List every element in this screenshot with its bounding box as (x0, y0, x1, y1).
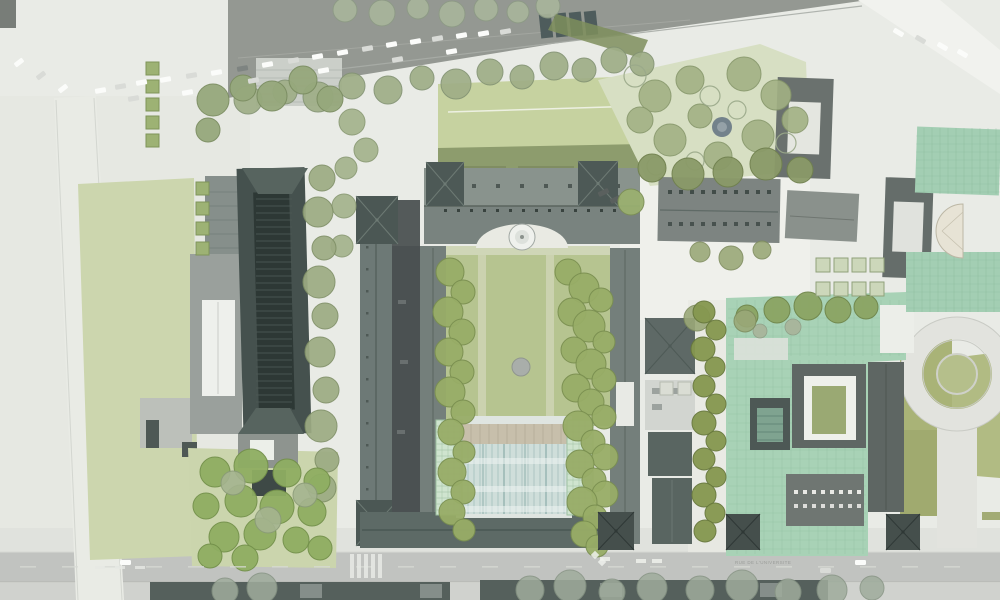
palace-north-wing-dormers-9 (561, 209, 564, 212)
bottom-road-center-dashes-7 (314, 566, 330, 568)
bottom-road-center-dashes-5 (230, 566, 246, 568)
road-markings-1 (636, 559, 646, 563)
palace-pavilion-northwest-3 (443, 182, 446, 185)
park-building-chimneys-row1-2 (690, 190, 694, 194)
allee-trees-12 (694, 520, 716, 542)
courtyard-path-left (478, 250, 486, 422)
east-block-a-3 (668, 344, 671, 347)
grove-trees-sage-2 (293, 483, 317, 507)
mint-south-windows-row2-3 (821, 504, 825, 508)
bottom-road-center-dashes-11 (482, 566, 498, 568)
northwest-tree-cluster-0 (197, 84, 229, 116)
boulevard-trees-north-row-2 (407, 0, 429, 19)
hedge-column-east-3 (196, 242, 209, 255)
west-road-dashes-1 (115, 566, 125, 569)
park-trees-5 (654, 124, 686, 156)
left-building-inner (253, 192, 295, 411)
terrace-fountain-jet (520, 235, 524, 239)
bottom-street-trees-10 (860, 576, 884, 600)
palace-west-outer-dormers-6 (366, 356, 369, 359)
mint-south-windows-row2-2 (812, 504, 816, 508)
palace-west-outer-dormers-11 (366, 466, 369, 469)
crosswalk-2 (364, 554, 368, 578)
left-building-tree-row-4 (312, 303, 338, 329)
palace-east-wing-court (616, 382, 634, 426)
parterre-garden-1 (834, 258, 848, 272)
grove-trees-12 (198, 544, 222, 568)
parterre-garden-5 (834, 282, 848, 296)
bottom-building-gaps-0 (300, 584, 322, 598)
park-building-chimneys-row1-9 (767, 190, 771, 194)
left-building-tree-row-6 (313, 377, 339, 403)
mint-south-windows-row2-5 (839, 504, 843, 508)
glass-hall-top-band (462, 424, 567, 444)
courtyard-trees-west-8 (438, 419, 464, 445)
palace-west-outer-dormers-10 (366, 444, 369, 447)
forecourt-tree (618, 189, 644, 215)
northeast-block-court (892, 201, 924, 252)
park-trees-9 (782, 107, 808, 133)
west-road-dashes-2 (135, 566, 145, 569)
palace-north-wing-dormers-1 (457, 209, 460, 212)
hedge-column-east-1 (196, 202, 209, 215)
northwest-tree-cluster-5 (196, 118, 220, 142)
crosswalk-3 (371, 554, 375, 578)
parterre-garden-3 (870, 258, 884, 272)
mint-south-windows-row1-2 (812, 490, 816, 494)
east-block-c (648, 432, 692, 476)
courtyard-trees-east-11 (592, 405, 616, 429)
bottom-road-center-dashes-15 (650, 566, 666, 568)
park-building-chimneys-row2-9 (767, 222, 771, 226)
mint-south-windows-row1-6 (848, 490, 852, 494)
park-building-chimneys-row2-5 (723, 222, 727, 226)
bottom-road-center-dashes-4 (188, 566, 204, 568)
boulevard-trees-north-row-4 (474, 0, 498, 21)
left-building-tree-row-5 (305, 337, 335, 367)
park-building-chimneys-row1-1 (679, 190, 683, 194)
mint-south-windows-row1-7 (857, 490, 861, 494)
park-pond-inner (717, 122, 727, 132)
bottom-road-center-dashes-21 (902, 566, 918, 568)
palace-north-wing-dormers-13 (613, 209, 616, 212)
grove-trees-11 (308, 536, 332, 560)
park-building-chimneys-row2-8 (756, 222, 760, 226)
courtyard-trees-east-14 (592, 444, 618, 470)
circular-drive-stem (937, 416, 977, 548)
palace-north-wing-chimneys-5 (568, 184, 572, 188)
palace-west-outer-dormers-3 (366, 290, 369, 293)
park-dark-tree-band-4 (787, 157, 813, 183)
bottom-street-trees-3 (554, 570, 586, 600)
park-dark-tree-band-1 (672, 158, 704, 190)
palace-north-wing-dormers-6 (522, 209, 525, 212)
grove-trees-sage-0 (221, 471, 245, 495)
garden-trees-0 (690, 242, 710, 262)
park-building-chimneys-row1-8 (756, 190, 760, 194)
courtyard-trees-east-8 (592, 368, 616, 392)
mint-north-trees-1 (764, 297, 790, 323)
allee-trees-7 (706, 431, 726, 451)
palace-west-outer-dormers-2 (366, 268, 369, 271)
palace-north-wing-dormers-12 (600, 209, 603, 212)
allee-trees-0 (693, 301, 715, 323)
park-building-chimneys-row1-6 (734, 190, 738, 194)
site-plan-canvas: RUE DE L'UNIVERSITE (0, 0, 1000, 600)
park-building-chimneys-row2-0 (668, 222, 672, 226)
boulevard-trees-north-row-3 (439, 1, 465, 27)
glass-hall-light-bands-1 (462, 486, 567, 492)
allee-trees-3 (705, 357, 725, 377)
bottom-road-center-dashes-22 (944, 566, 960, 568)
palace-pavilion-west-north-3 (375, 218, 378, 221)
boulevard-trees-main-row-10 (572, 58, 596, 82)
palace-pavilion-northeast-3 (596, 182, 599, 185)
park-dark-tree-band-0 (638, 154, 666, 182)
mint-south-windows-row1-0 (794, 490, 798, 494)
park-trees-1 (676, 66, 704, 94)
parterre-garden-6 (852, 282, 866, 296)
glass-hall-light-bands-0 (462, 458, 567, 464)
garden-hedge-squares-1 (678, 382, 691, 395)
grove-trees-10 (283, 527, 309, 553)
courtyard-center-fountain (512, 358, 530, 376)
mint-south-block (786, 474, 864, 526)
bottom-road-center-dashes-10 (440, 566, 456, 568)
bottom-road-center-dashes-3 (146, 566, 162, 568)
west-court-marks-1 (400, 360, 408, 364)
palace-north-wing-dormers-11 (587, 209, 590, 212)
garden-trees-2 (753, 241, 771, 259)
bottom-street-trees-1 (247, 573, 277, 600)
platform-dark-block (146, 420, 159, 448)
top-road-corner-patch (0, 0, 16, 28)
allee-trees-5 (706, 394, 726, 414)
garden-hedge-squares-0 (660, 382, 673, 395)
northwest-tree-cluster-2 (257, 81, 287, 111)
palace-west-outer-dormers-4 (366, 312, 369, 315)
mid-west-trees-1 (354, 138, 378, 162)
mint-south-windows-row2-0 (794, 504, 798, 508)
bottom-road-cars-2 (855, 560, 866, 565)
street-pavilion-west-3 (614, 529, 617, 532)
palace-north-wing-dormers-4 (496, 209, 499, 212)
courtyard-path-right (546, 250, 554, 422)
boulevard-trees-main-row-5 (410, 66, 434, 90)
boulevard-trees-north-row-5 (507, 1, 529, 23)
hedge-column-west-2 (146, 98, 159, 111)
grove-trees-sage-1 (255, 507, 281, 533)
palace-north-wing-chimneys-4 (544, 184, 548, 188)
park-building-chimneys-row2-6 (734, 222, 738, 226)
palace-north-wing-dormers-8 (548, 209, 551, 212)
northwest-tree-cluster-3 (289, 66, 317, 94)
palace-north-wing-dormers-0 (444, 209, 447, 212)
palace-north-wing-chimneys-1 (472, 184, 476, 188)
park-building-chimneys-row1-7 (745, 190, 749, 194)
palace-north-wing-dormers-7 (535, 209, 538, 212)
left-building-tree-row-0 (309, 165, 335, 191)
park-dark-tree-band-3 (750, 148, 782, 180)
mint-south-windows-row2-1 (803, 504, 807, 508)
northwest-tree-cluster-4 (317, 86, 343, 112)
park-dark-tree-band-2 (713, 157, 743, 187)
hedge-column-west-0 (146, 62, 159, 75)
palace-west-outer-dormers-5 (366, 334, 369, 337)
park-building-chimneys-row2-1 (679, 222, 683, 226)
boulevard-trees-main-row-12 (630, 52, 654, 76)
left-building-tree-row-2 (312, 236, 336, 260)
hedge-column-west-1 (146, 80, 159, 93)
west-road-dashes-0 (95, 566, 105, 569)
east-block-b-marks-2 (652, 404, 662, 410)
bottom-street-trees-9 (817, 575, 847, 600)
hedge-column-west-4 (146, 134, 159, 147)
bottom-road-center-dashes-12 (524, 566, 540, 568)
mid-west-trees-0 (339, 109, 365, 135)
boulevard-trees-main-row-8 (510, 65, 534, 89)
boulevard-trees-main-row-11 (601, 47, 627, 73)
bottom-road-center-dashes-1 (62, 566, 78, 568)
palace-west-outer-dormers-7 (366, 378, 369, 381)
palace-west-court-strip (392, 246, 420, 544)
bottom-road-cars-1 (820, 568, 831, 573)
mint-northwest-court (734, 338, 788, 360)
bottom-road-center-dashes-13 (566, 566, 582, 568)
park-building-chimneys-row2-7 (745, 222, 749, 226)
mint-south-windows-row2-6 (848, 504, 852, 508)
mint-olive-court (812, 386, 846, 434)
bottom-road-center-dashes-19 (818, 566, 834, 568)
teal-court (757, 408, 783, 442)
park-trees-4 (688, 104, 712, 128)
west-court-marks-2 (397, 430, 405, 434)
bottom-road-cars-0 (120, 560, 131, 565)
palace-west-outer-dormers-8 (366, 400, 369, 403)
mint-northeast-1 (915, 127, 1000, 196)
bottom-road-center-dashes-16 (692, 566, 708, 568)
grove-trees-4 (193, 493, 219, 519)
park-trees-2 (727, 57, 761, 91)
mint-south-windows-row1-4 (830, 490, 834, 494)
palace-north-wing-dormers-5 (509, 209, 512, 212)
palace-west-outer-dormers-9 (366, 422, 369, 425)
bottom-road-center-dashes-0 (20, 566, 36, 568)
bottom-road-center-dashes-14 (608, 566, 624, 568)
street-pavilion-center-3 (741, 530, 744, 533)
park-building-chimneys-row1-0 (668, 190, 672, 194)
park-building-chimneys-row1-4 (712, 190, 716, 194)
mint-south-windows-row2-4 (830, 504, 834, 508)
palace-west-outer-dormers-1 (366, 246, 369, 249)
bottom-street-trees-5 (637, 573, 667, 600)
circular-drive-island (937, 354, 977, 394)
crosswalk-4 (378, 554, 382, 578)
mint-south-windows-row1-5 (839, 490, 843, 494)
glass-hall-light-bands-2 (462, 506, 567, 512)
mid-west-trees-3 (332, 194, 356, 218)
parterre-garden-7 (870, 282, 884, 296)
crosswalk-0 (350, 554, 354, 578)
bottom-street-trees-4 (599, 579, 625, 600)
parterre-garden-4 (816, 282, 830, 296)
left-building-tree-row-1 (303, 197, 333, 227)
garden-trees-1 (719, 246, 743, 270)
bottom-street-trees-0 (212, 578, 238, 600)
palace-north-wing-chimneys-3 (520, 184, 524, 188)
west-court-marks-0 (398, 300, 406, 304)
park-trees-7 (742, 120, 774, 152)
left-lawn (78, 178, 198, 560)
boulevard-trees-north-row-1 (369, 0, 395, 26)
glass-hall-roof (462, 444, 567, 514)
park-building-chimneys-row1-3 (701, 190, 705, 194)
garden-trees-4 (734, 310, 756, 332)
palace-west-outer-dormers-12 (366, 488, 369, 491)
park-building-chimneys-row2-4 (712, 222, 716, 226)
allee-trees-8 (693, 448, 715, 470)
palace-north-wing-dormers-10 (574, 209, 577, 212)
bottom-street-trees-8 (775, 579, 801, 600)
bottom-road-center-dashes-18 (776, 566, 792, 568)
bottom-street-trees-2 (516, 576, 544, 600)
mint-south-windows-row2-7 (857, 504, 861, 508)
hedge-column-east-0 (196, 182, 209, 195)
park-building-chimneys-row2-2 (690, 222, 694, 226)
palace-north-wing-dormers-2 (470, 209, 473, 212)
palace-north-wing-chimneys-2 (496, 184, 500, 188)
allee-trees-4 (693, 375, 715, 397)
bottom-street-trees-7 (726, 570, 758, 600)
bottom-road-center-dashes-17 (734, 566, 750, 568)
bottom-road-center-dashes-9 (398, 566, 414, 568)
park-building-chimneys-row1-5 (723, 190, 727, 194)
mint-north-trees-3 (825, 297, 851, 323)
courtyard-trees-west-13 (453, 519, 475, 541)
park-building-chimneys-row2-3 (701, 222, 705, 226)
left-building-tree-row-3 (303, 266, 335, 298)
boulevard-trees-north-row-0 (333, 0, 357, 22)
boulevard-trees-main-row-6 (441, 69, 471, 99)
aerial-site-plan: RUE DE L'UNIVERSITE (0, 0, 1000, 600)
parterre-garden-0 (816, 258, 830, 272)
bottom-building-gaps-1 (420, 584, 442, 598)
boulevard-trees-main-row-4 (374, 76, 402, 104)
bus-shelter (982, 512, 1000, 520)
bottom-road-center-dashes-20 (860, 566, 876, 568)
road-markings-2 (652, 559, 662, 563)
mint-small-trees-1 (785, 319, 801, 335)
boulevard-trees-main-row-9 (540, 52, 568, 80)
hedge-column-east-2 (196, 222, 209, 235)
allee-trees-1 (706, 320, 726, 340)
left-building-tree-row-7 (305, 410, 337, 442)
hedge-column-west-3 (146, 116, 159, 129)
boulevard-trees-main-row-7 (477, 59, 503, 85)
park-trees-8 (627, 107, 653, 133)
crosswalk-1 (357, 554, 361, 578)
street-name-label: RUE DE L'UNIVERSITE (735, 560, 791, 565)
mint-upper-white-court (880, 305, 914, 353)
park-trees-3 (761, 80, 791, 110)
bottom-road-center-dashes-6 (272, 566, 288, 568)
bottom-street-trees-6 (686, 576, 714, 600)
parterre-garden-2 (852, 258, 866, 272)
grove-trees-2 (273, 459, 301, 487)
mid-west-trees-2 (335, 157, 357, 179)
mint-north-trees-4 (854, 295, 878, 319)
mint-south-windows-row1-3 (821, 490, 825, 494)
mint-south-windows-row1-1 (803, 490, 807, 494)
annex-northwest (205, 176, 239, 254)
courtyard-trees-east-2 (589, 288, 613, 312)
street-pavilion-east-3 (901, 530, 904, 533)
palace-north-wing-dormers-3 (483, 209, 486, 212)
